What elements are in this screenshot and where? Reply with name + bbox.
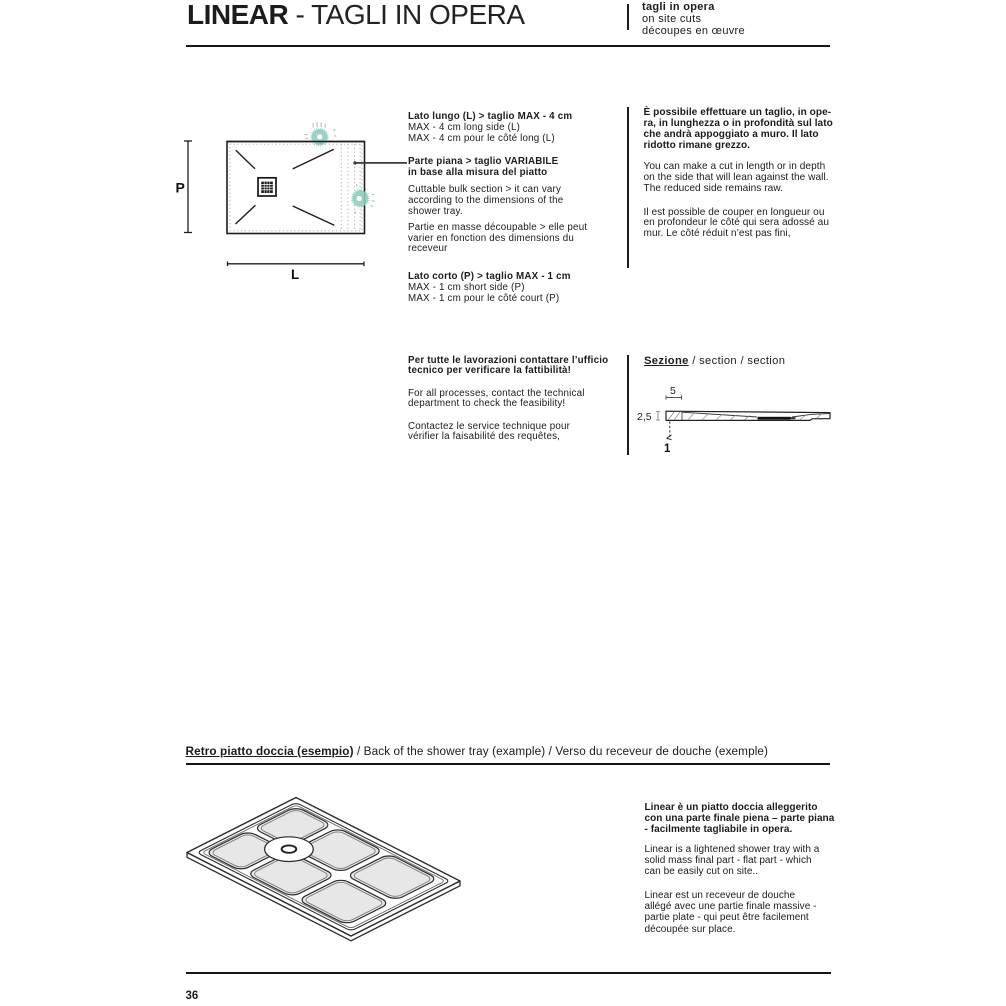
svg-text:P: P — [176, 180, 185, 196]
svg-text:2,5: 2,5 — [637, 411, 652, 423]
svg-text:L: L — [291, 267, 299, 282]
svg-text:1: 1 — [664, 443, 671, 455]
svg-text:5: 5 — [670, 385, 676, 397]
